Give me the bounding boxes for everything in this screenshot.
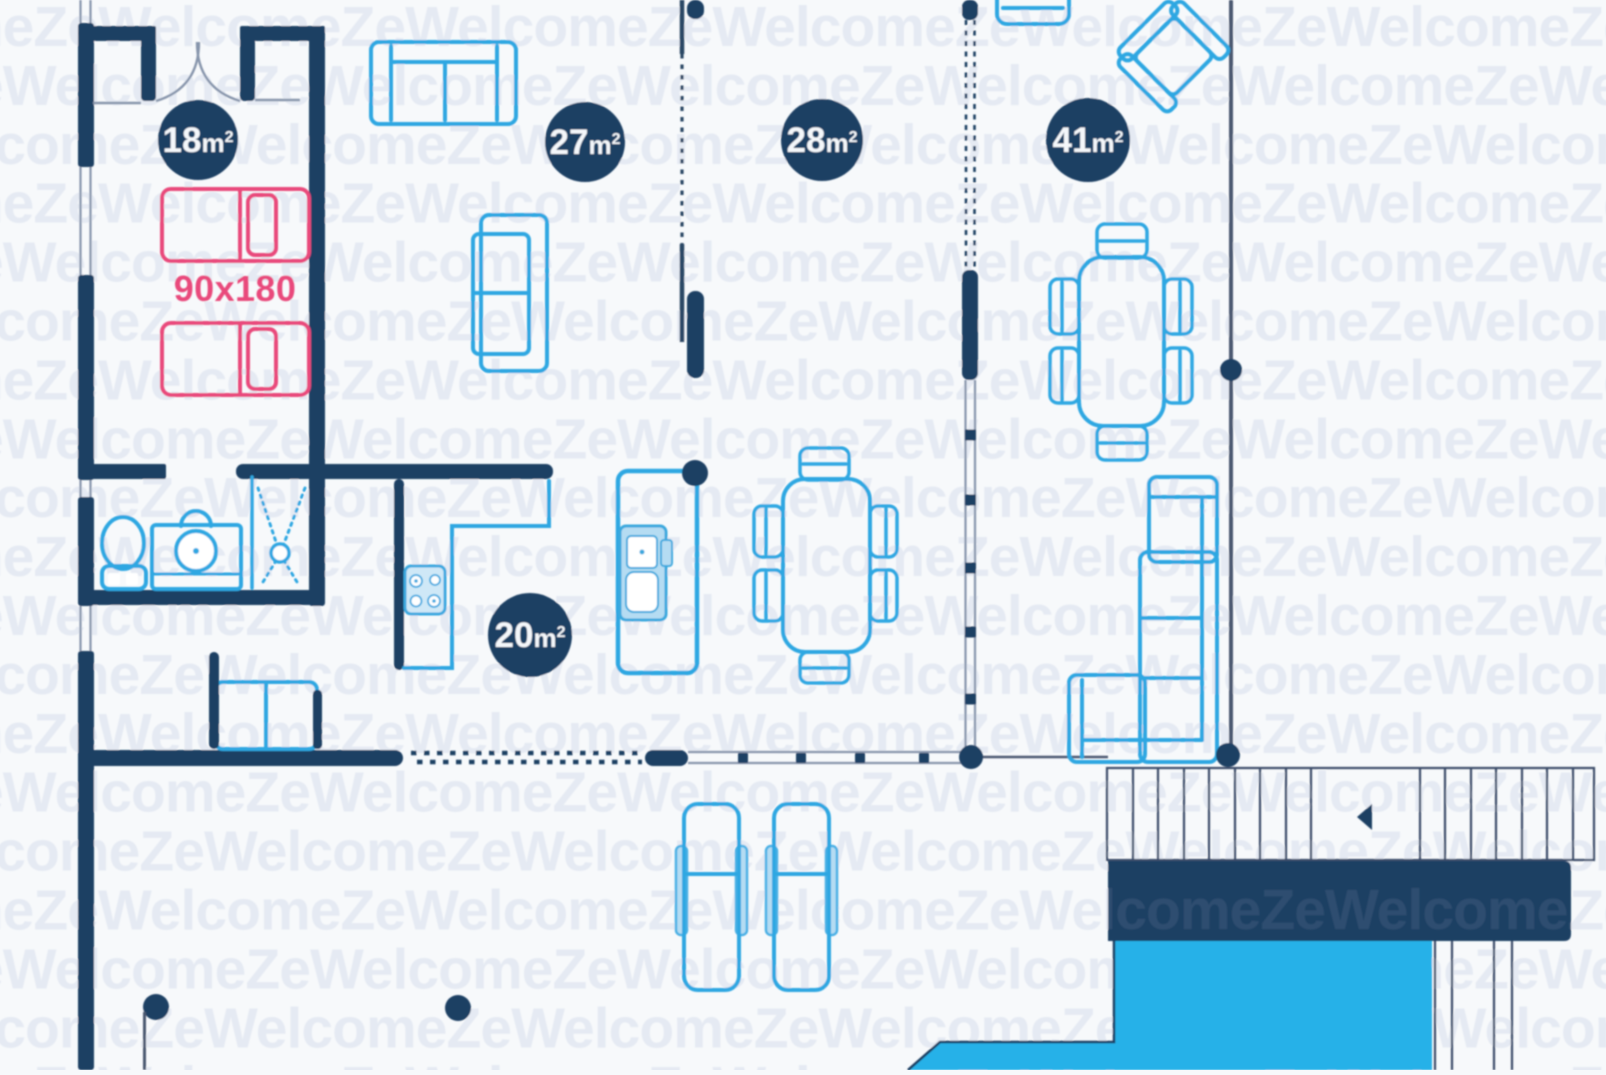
svg-text:ZeWelcomeZeWelcomeZeWelcomeZeW: ZeWelcomeZeWelcomeZeWelcomeZeWelcomeZeWe…: [0, 407, 1606, 471]
svg-text:90x180: 90x180: [174, 268, 297, 309]
